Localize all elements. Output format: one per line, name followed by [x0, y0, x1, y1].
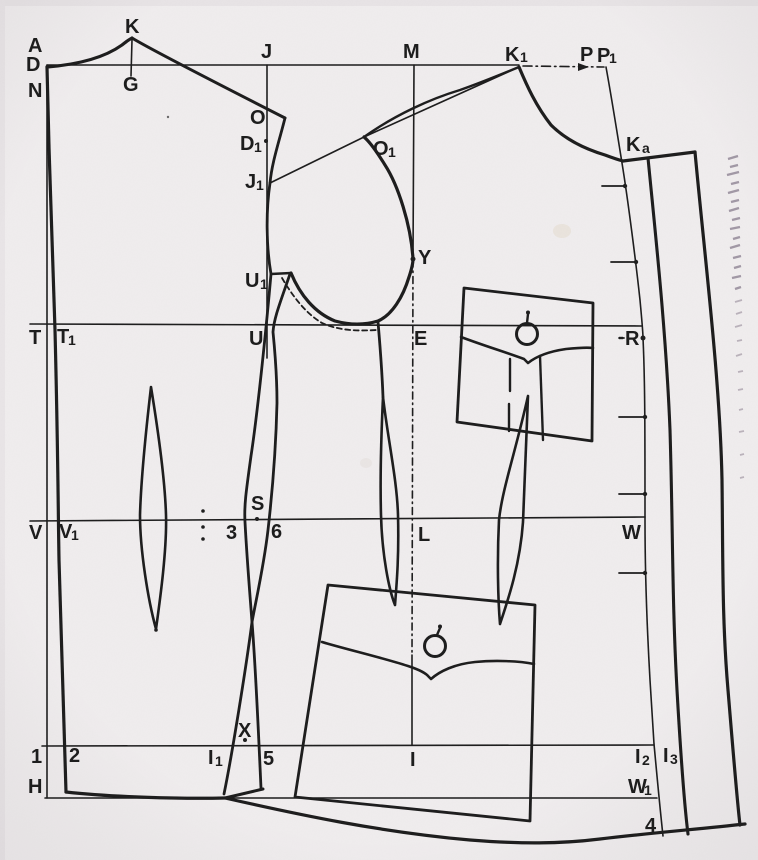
svg-text:G: G: [123, 74, 139, 96]
svg-text:M: M: [403, 41, 420, 63]
svg-text:K: K: [125, 16, 140, 38]
svg-text:1: 1: [71, 527, 79, 543]
svg-text:6: 6: [271, 521, 282, 543]
svg-text:3: 3: [670, 751, 678, 767]
svg-text:1: 1: [260, 276, 268, 292]
svg-text:S: S: [251, 493, 264, 515]
svg-text:I: I: [208, 747, 214, 769]
svg-text:a: a: [642, 140, 650, 156]
svg-text:1: 1: [215, 753, 223, 769]
svg-text:W: W: [622, 522, 641, 544]
svg-text:J: J: [261, 41, 272, 63]
svg-text:I: I: [410, 749, 416, 771]
svg-text:3: 3: [226, 522, 237, 544]
svg-text:I: I: [635, 746, 641, 768]
svg-text:O: O: [373, 138, 389, 160]
svg-text:5: 5: [263, 748, 274, 770]
svg-text:I: I: [663, 745, 669, 767]
svg-text:1: 1: [254, 139, 262, 155]
svg-text:1: 1: [256, 177, 264, 193]
svg-text:O: O: [250, 107, 266, 129]
svg-text:N: N: [28, 80, 42, 102]
svg-text:U: U: [245, 270, 259, 292]
svg-text:T: T: [29, 327, 41, 349]
svg-text:K: K: [626, 134, 641, 156]
svg-text:1: 1: [388, 144, 396, 160]
svg-text:1: 1: [609, 50, 617, 66]
svg-text:P: P: [580, 44, 593, 66]
svg-text:2: 2: [69, 745, 80, 767]
svg-text:R: R: [625, 328, 640, 350]
svg-text:H: H: [28, 776, 42, 798]
svg-text:E: E: [414, 328, 427, 350]
svg-text:4: 4: [645, 815, 657, 837]
svg-text:D: D: [240, 133, 254, 155]
svg-text:V: V: [29, 522, 43, 544]
svg-text:X: X: [238, 720, 252, 742]
svg-text:U: U: [249, 328, 263, 350]
svg-text:1: 1: [31, 746, 42, 768]
svg-text:1: 1: [644, 782, 652, 798]
svg-text:L: L: [418, 524, 430, 546]
svg-text:K: K: [505, 44, 520, 66]
svg-text:1: 1: [68, 332, 76, 348]
svg-text:Y: Y: [418, 247, 432, 269]
svg-text:J: J: [245, 171, 256, 193]
svg-text:D: D: [26, 54, 40, 76]
svg-text:2: 2: [642, 752, 650, 768]
svg-text:1: 1: [520, 49, 528, 65]
